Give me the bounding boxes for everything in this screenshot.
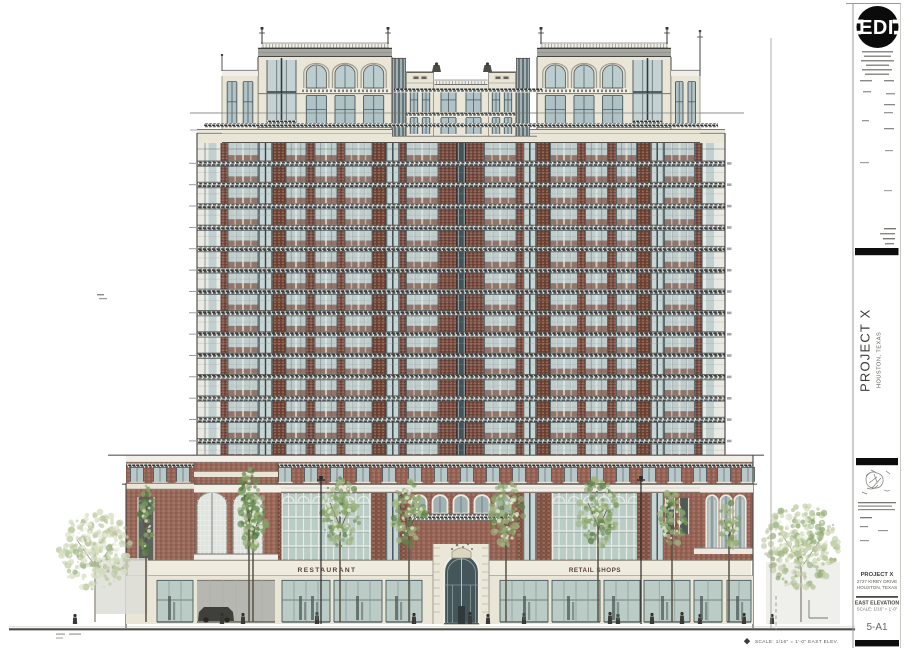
svg-text:SCALE: 1/16" = 1'-0" EAST ELEV: SCALE: 1/16" = 1'-0" EAST ELEV. xyxy=(755,639,838,644)
svg-text:RETAIL SHOPS: RETAIL SHOPS xyxy=(569,567,621,574)
svg-text:SCALE: 1/16" = 1'-0": SCALE: 1/16" = 1'-0" xyxy=(857,607,898,612)
svg-text:RESTAURANT: RESTAURANT xyxy=(298,567,357,574)
svg-text:PROJECT X: PROJECT X xyxy=(861,572,894,578)
svg-text:PROJECT X: PROJECT X xyxy=(858,308,873,392)
svg-text:EDI: EDI xyxy=(859,17,894,39)
svg-text:HOUSTON, TEXAS: HOUSTON, TEXAS xyxy=(877,332,883,388)
svg-text:5-A1: 5-A1 xyxy=(866,622,888,633)
svg-text:2727 KIRBY DRIVE: 2727 KIRBY DRIVE xyxy=(857,579,898,584)
svg-text:HOUSTON, TEXAS: HOUSTON, TEXAS xyxy=(857,585,897,590)
